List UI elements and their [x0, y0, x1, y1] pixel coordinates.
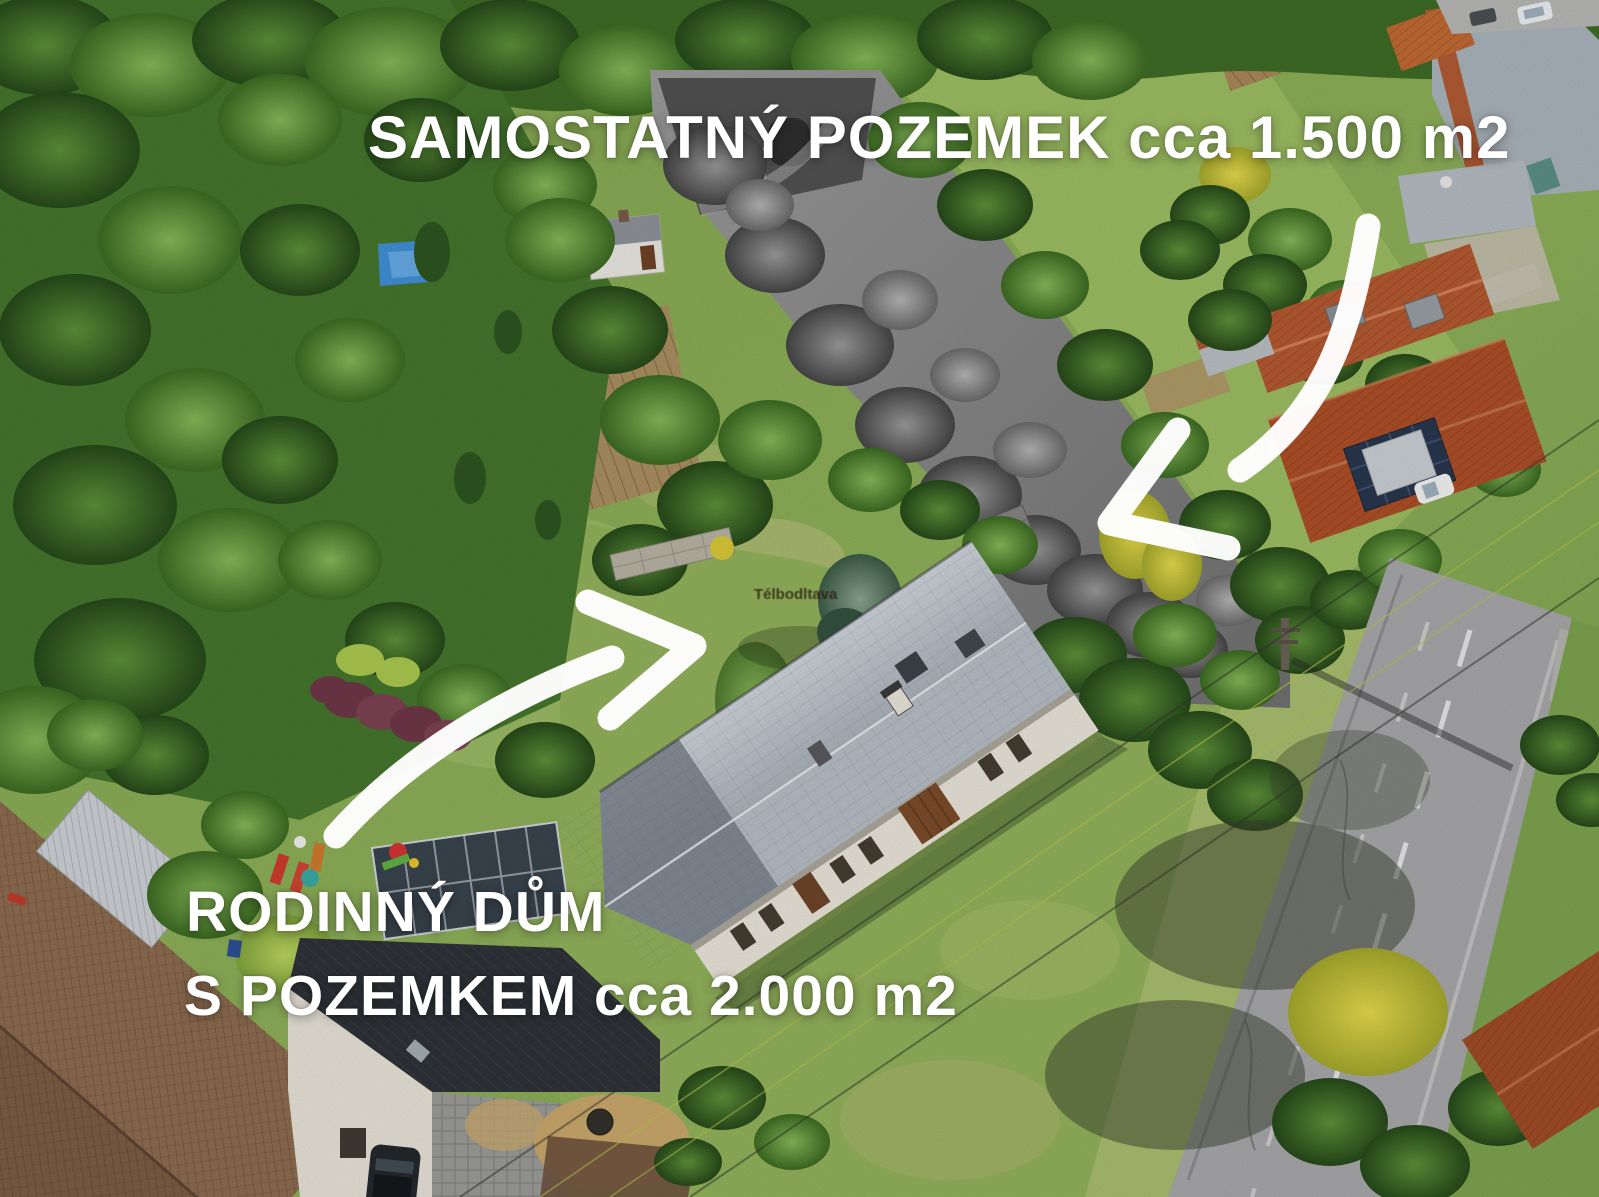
aerial-photo: SAMOSTATNÝ POZEMEK cca 1.500 m2 RODINNÝ …	[0, 0, 1599, 1197]
house-size-label: S POZEMKEM cca 2.000 m2	[184, 968, 958, 1025]
plot-size-label: SAMOSTATNÝ POZEMEK cca 1.500 m2	[368, 108, 1510, 168]
watermark: Télbodltava	[754, 586, 837, 603]
house-title-label: RODINNÝ DŮM	[186, 884, 606, 941]
